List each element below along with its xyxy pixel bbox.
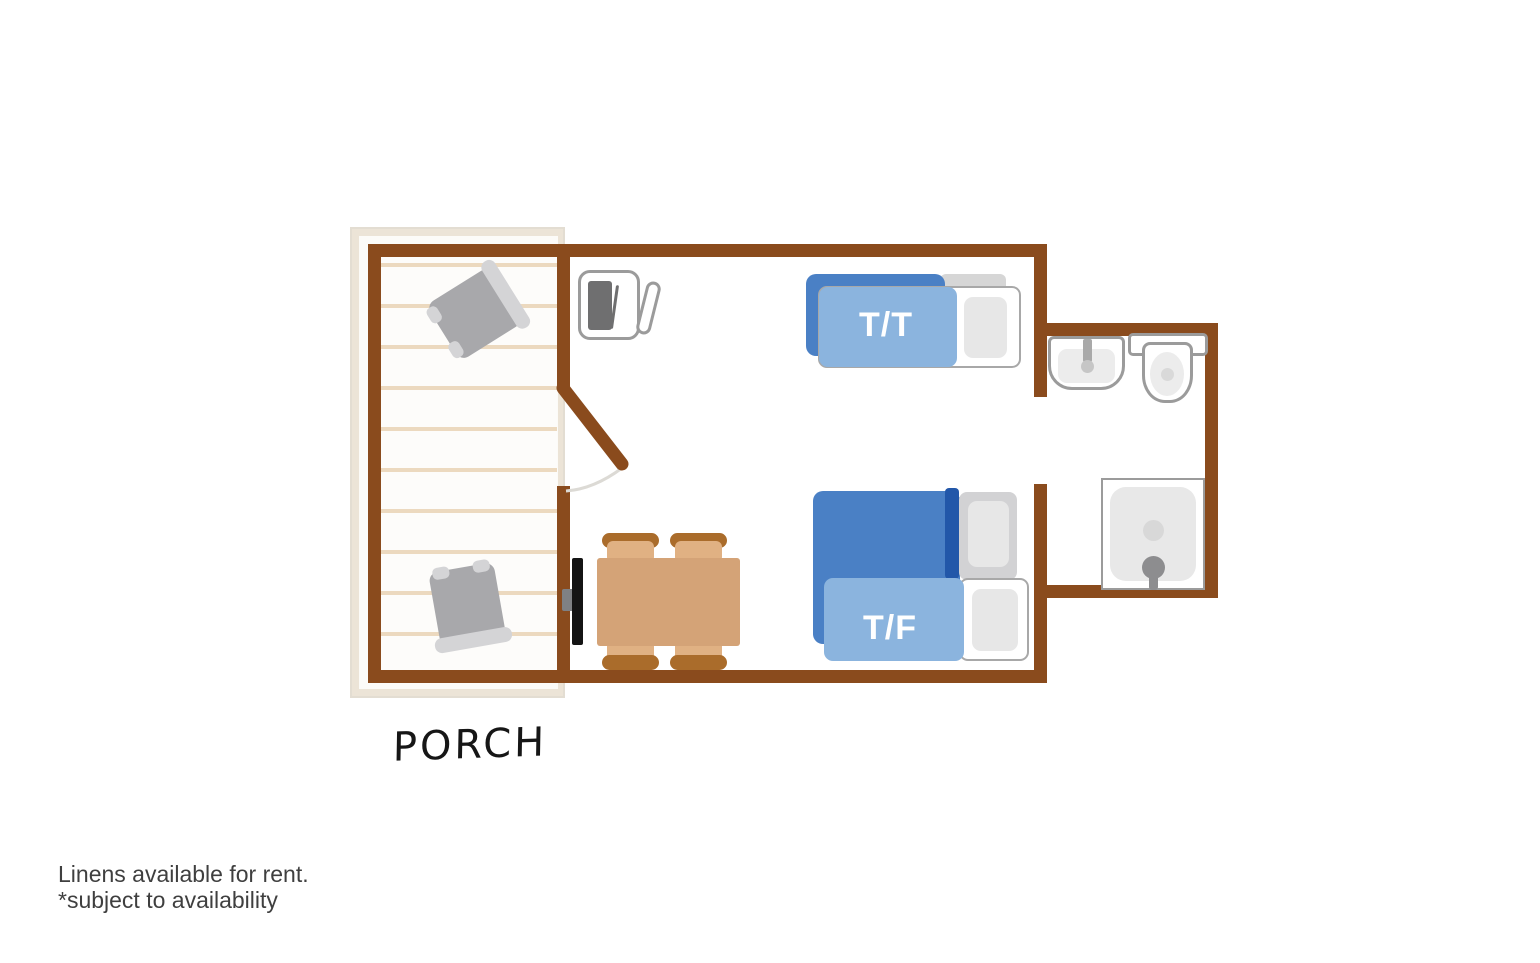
tf-bed-twin-pillow	[972, 589, 1018, 651]
door-icon	[0, 0, 1540, 963]
wall-bathroom-right	[1205, 323, 1218, 598]
tt-bed-pillow	[964, 297, 1007, 358]
porch-chair-icon	[418, 556, 519, 662]
tt-bed-label: T/T	[828, 306, 944, 345]
linens-note: Linens available for rent. *subject to a…	[58, 861, 309, 913]
faucet-knob	[1081, 360, 1094, 373]
faucet-icon	[1083, 339, 1092, 362]
porch-label: PORCH	[388, 719, 553, 771]
wall-right-lower	[1034, 484, 1047, 683]
door-leaf	[563, 388, 622, 464]
toilet-drain	[1161, 368, 1174, 381]
dining-table-icon	[597, 558, 740, 646]
mini-fridge-interior	[588, 281, 612, 330]
shower-drain	[1143, 520, 1164, 541]
tf-bed-label: T/F	[832, 609, 948, 648]
tf-bed-full-pillow	[968, 501, 1009, 567]
wall-porch-left	[368, 244, 381, 683]
wall-divider-upper	[557, 244, 570, 390]
door-swing-arc	[566, 468, 622, 491]
wall-top	[368, 244, 1046, 257]
floor-plan-canvas: T/T T/F PORCH Linens available for rent.…	[0, 0, 1540, 963]
dining-chair-icon	[670, 655, 727, 670]
wall-bottom	[368, 670, 1046, 683]
linens-note-line1: Linens available for rent.	[58, 861, 309, 887]
dining-chair-icon	[602, 655, 659, 670]
wall-divider-lower	[557, 486, 570, 683]
linens-note-line2: *subject to availability	[58, 887, 309, 913]
tf-bed-blanket-fold	[945, 488, 959, 579]
shower-handle	[1142, 556, 1165, 579]
wall-right-upper	[1034, 244, 1047, 397]
tv-icon	[572, 558, 583, 645]
